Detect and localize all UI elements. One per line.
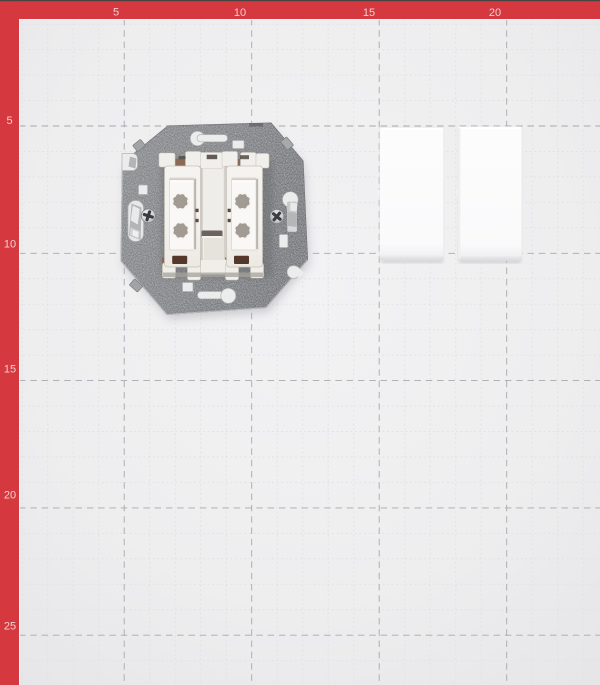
svg-text:25: 25 bbox=[4, 621, 16, 633]
svg-text:5: 5 bbox=[113, 7, 119, 19]
svg-text:10: 10 bbox=[234, 7, 246, 19]
svg-text:15: 15 bbox=[363, 7, 375, 19]
svg-text:20: 20 bbox=[489, 7, 501, 19]
svg-text:10: 10 bbox=[4, 239, 16, 251]
svg-text:15: 15 bbox=[4, 364, 16, 376]
svg-text:20: 20 bbox=[4, 490, 16, 502]
svg-text:5: 5 bbox=[6, 115, 12, 127]
